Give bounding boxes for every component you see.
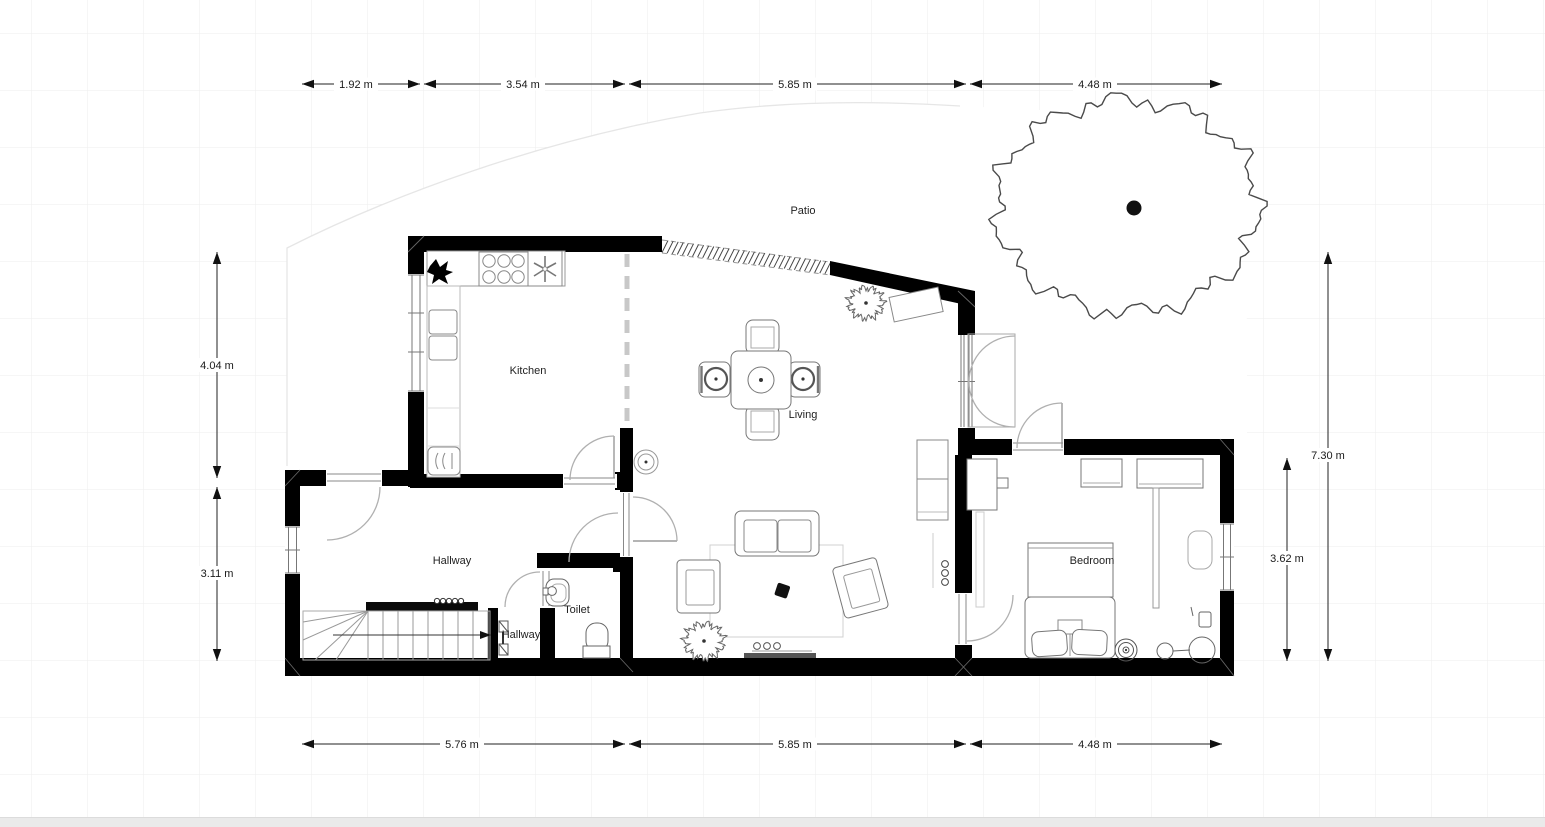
basin-icon — [543, 579, 569, 606]
armchair — [677, 560, 720, 613]
dimension-label: 3.54 m — [506, 79, 540, 91]
dresser-wide — [1137, 459, 1203, 488]
dimension-label: 1.92 m — [339, 79, 373, 91]
room-label-hallway: Hallway — [433, 555, 472, 567]
dimension-label: 5.85 m — [778, 739, 812, 751]
toilet-icon — [583, 623, 610, 658]
dimension-label: 4.48 m — [1078, 79, 1112, 91]
sofa — [735, 511, 819, 556]
window-hallway-left — [285, 526, 300, 574]
dining-chair — [699, 362, 730, 397]
dresser — [1081, 459, 1122, 487]
room-label-kitchen: Kitchen — [510, 365, 547, 377]
sideboard — [917, 440, 948, 520]
window-kitchen-left — [408, 274, 424, 392]
dimension-label: 7.30 m — [1311, 450, 1345, 462]
dimension-label: 3.11 m — [201, 568, 234, 580]
room-label-toilet: Toilet — [564, 604, 590, 616]
oven-icon — [428, 447, 460, 475]
partition — [1153, 488, 1159, 608]
ceiling-lamp-icon — [634, 450, 658, 474]
extractor-fan-icon — [528, 251, 562, 286]
dimension-label: 3.62 m — [1270, 553, 1304, 565]
room-label-hallway-lower: Hallway — [502, 629, 541, 641]
tree-trunk — [1127, 201, 1142, 216]
wall-switches — [942, 561, 949, 586]
cooktop-icon — [479, 252, 528, 286]
window-bedroom-right — [1220, 523, 1234, 591]
dimension-label: 4.48 m — [1078, 739, 1112, 751]
floorplan-canvas[interactable]: Patio Kitchen Living Hallway Toilet Hall… — [0, 0, 1545, 827]
canvas-footer-strip — [0, 817, 1545, 827]
room-label-bedroom: Bedroom — [1070, 555, 1115, 567]
dining-chair — [789, 362, 820, 397]
dimension-label: 5.85 m — [778, 79, 812, 91]
room-label-living: Living — [789, 409, 818, 421]
dimension-label: 4.04 m — [200, 360, 234, 372]
room-label-patio: Patio — [790, 205, 815, 217]
speaker-icon — [1115, 639, 1137, 661]
dimension-label: 5.76 m — [445, 739, 479, 751]
